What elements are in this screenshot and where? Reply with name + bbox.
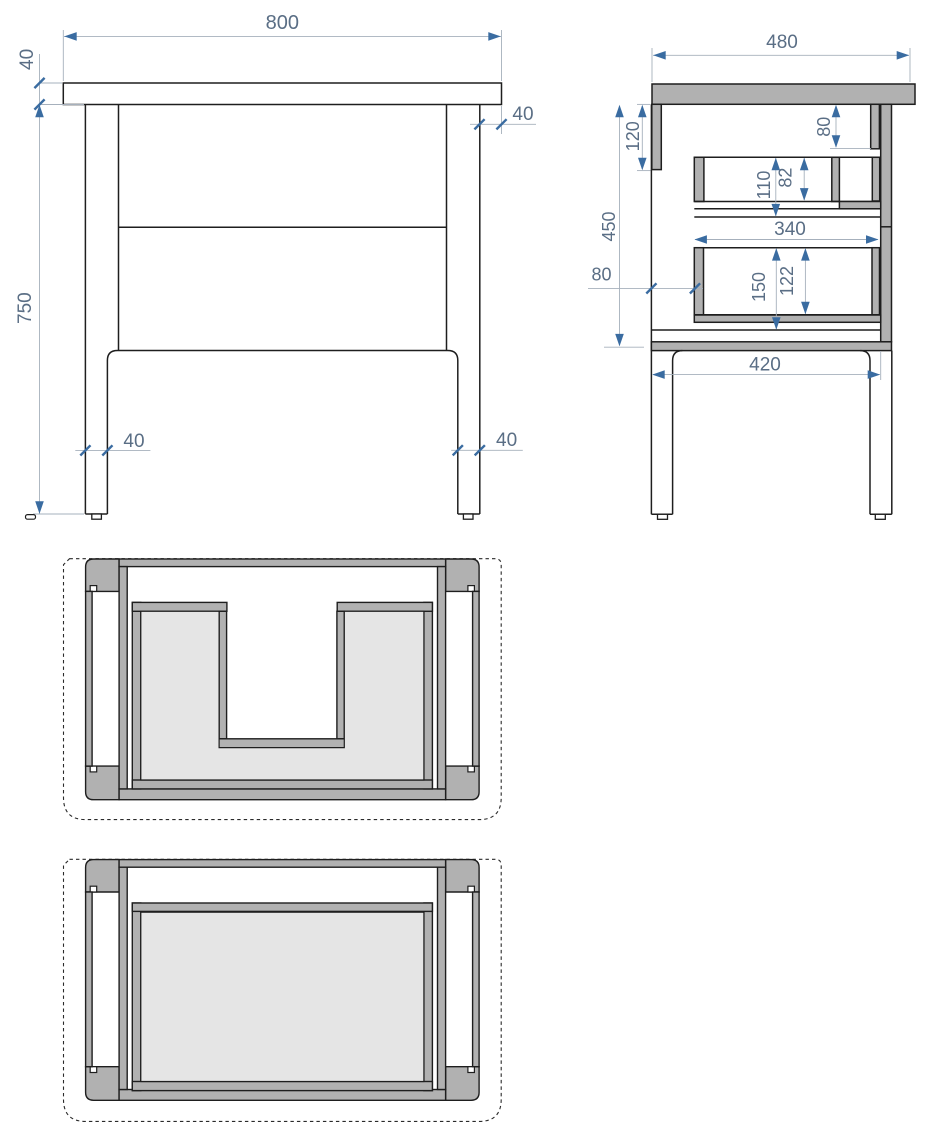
svg-text:80: 80 [591, 265, 611, 285]
svg-text:800: 800 [266, 12, 299, 34]
svg-text:110: 110 [754, 171, 774, 200]
svg-text:40: 40 [512, 104, 533, 125]
svg-text:340: 340 [774, 219, 806, 240]
svg-text:150: 150 [749, 272, 769, 302]
svg-text:40: 40 [123, 431, 144, 452]
svg-text:450: 450 [599, 211, 619, 241]
svg-text:122: 122 [777, 266, 797, 296]
svg-text:40: 40 [17, 49, 38, 70]
svg-text:120: 120 [623, 121, 643, 151]
svg-text:750: 750 [15, 292, 36, 324]
svg-text:82: 82 [776, 168, 796, 188]
svg-text:420: 420 [749, 355, 781, 376]
svg-text:40: 40 [496, 430, 517, 451]
svg-text:80: 80 [814, 117, 834, 137]
svg-text:480: 480 [766, 32, 798, 53]
